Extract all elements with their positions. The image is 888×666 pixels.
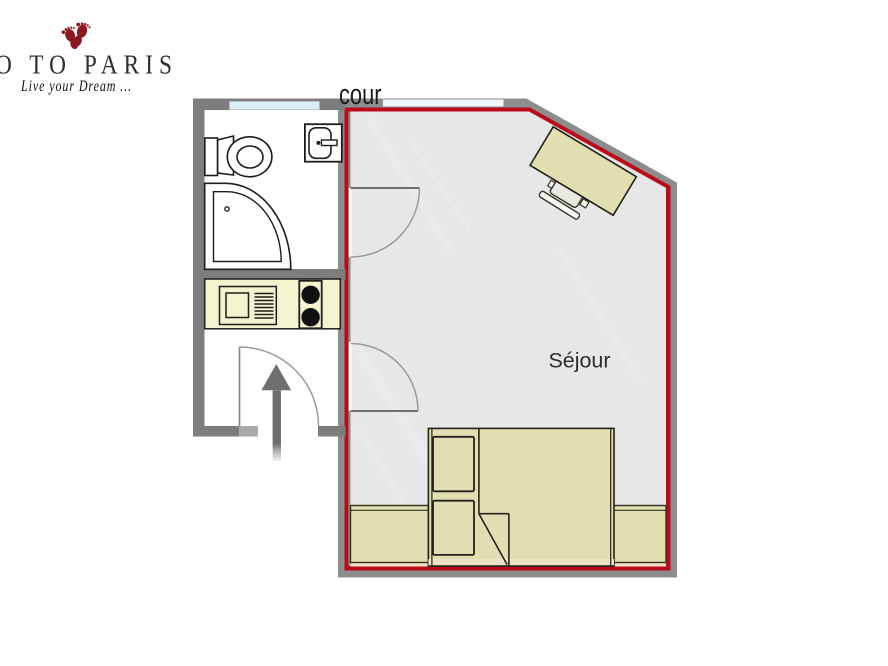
svg-text:cour: cour xyxy=(339,79,382,111)
svg-text:Séjour: Séjour xyxy=(549,350,611,373)
svg-text:O TO PARIS: O TO PARIS xyxy=(0,50,178,80)
svg-text:Live your Dream ...: Live your Dream ... xyxy=(20,78,132,95)
